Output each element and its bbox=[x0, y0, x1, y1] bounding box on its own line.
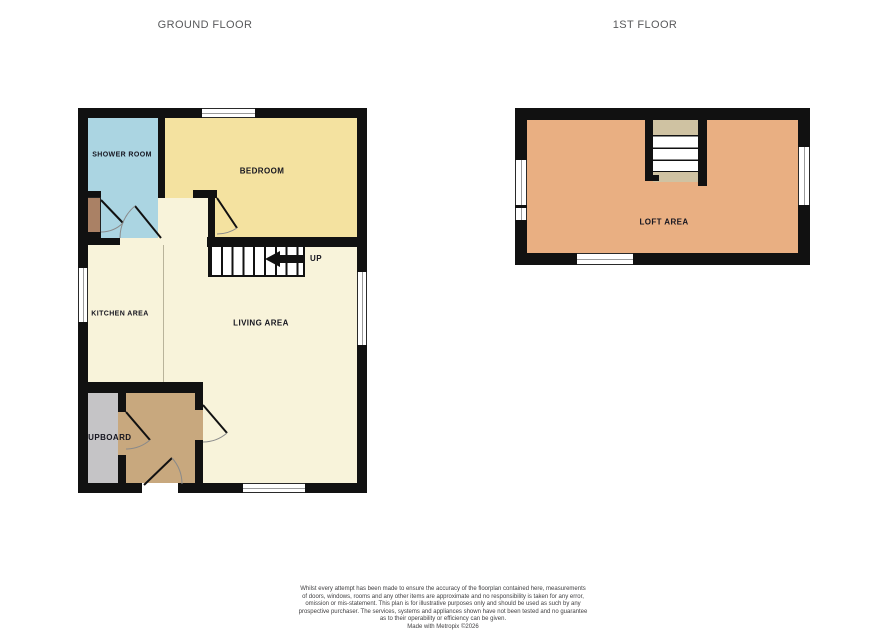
wall-backdoor-stub-top bbox=[88, 191, 101, 197]
stairs-landing-bottom bbox=[653, 172, 698, 182]
disclaimer: Whilst every attempt has been made to en… bbox=[283, 586, 603, 632]
disclaimer-line: as to their operability or efficiency ca… bbox=[283, 616, 603, 624]
wall-hall-stub-top bbox=[195, 387, 203, 410]
cupboard-label: CUPBOARD bbox=[82, 433, 131, 442]
stairs-up-label: UP bbox=[310, 254, 322, 263]
window-right bbox=[357, 272, 367, 345]
wall-hall-stub-bottom bbox=[195, 440, 203, 483]
disclaimer-line: Whilst every attempt has been made to en… bbox=[283, 586, 603, 594]
stairs-first bbox=[653, 135, 698, 172]
ground-floor-title: GROUND FLOOR bbox=[120, 19, 290, 31]
shower-room-label: SHOWER ROOM bbox=[92, 152, 152, 159]
wall-cupboard-stub-bottom bbox=[118, 455, 126, 483]
wall-bottom bbox=[78, 483, 367, 493]
loft-area-label: LOFT AREA bbox=[639, 218, 688, 227]
wall-shower-bottom bbox=[88, 238, 120, 245]
bedroom-label: BEDROOM bbox=[240, 167, 285, 176]
wall-cupboard-top bbox=[88, 382, 203, 393]
wall-top bbox=[515, 108, 810, 120]
wall-bedroom-bottom bbox=[207, 237, 357, 247]
wall-stairwell-right bbox=[698, 120, 707, 186]
first-floor-plan: LOFT AREA bbox=[515, 108, 810, 265]
kitchen-area-label: KITCHEN AREA bbox=[91, 311, 148, 318]
wall-bottom bbox=[515, 253, 810, 265]
kitchen-living-divider bbox=[163, 245, 164, 382]
front-door-opening bbox=[142, 483, 178, 493]
disclaimer-line: prospective purchaser. The services, sys… bbox=[283, 609, 603, 617]
window-top bbox=[202, 108, 255, 118]
wall-stairwell-left bbox=[645, 120, 653, 181]
stairs-landing-top bbox=[653, 120, 698, 135]
wall-cupboard-stub-top bbox=[118, 393, 126, 412]
window-right bbox=[798, 147, 810, 205]
up-arrow-icon bbox=[280, 255, 304, 263]
floorplan-page: GROUND FLOOR 1ST FLOOR bbox=[0, 0, 886, 640]
window-left-upper bbox=[515, 160, 527, 205]
living-area-label: LIVING AREA bbox=[233, 319, 289, 328]
window-bottom bbox=[243, 483, 305, 493]
wall-stairwell-left-stub bbox=[645, 175, 659, 181]
disclaimer-line: omission or mis-statement. This plan is … bbox=[283, 601, 603, 609]
wall-backdoor-stub-bottom bbox=[88, 232, 101, 238]
metropix-credit: Made with Metropix ©2026 bbox=[283, 624, 603, 632]
window-left-lower bbox=[515, 208, 527, 220]
window-bottom bbox=[577, 253, 633, 265]
wall-shower-bedroom bbox=[158, 118, 165, 198]
disclaimer-line: of doors, windows, rooms and any other i… bbox=[283, 594, 603, 602]
window-left bbox=[78, 268, 88, 322]
ground-floor-plan: UP SHOWER ROOM BEDROOM KITCHEN AREA LIVI… bbox=[78, 108, 367, 493]
first-floor-title: 1ST FLOOR bbox=[560, 19, 730, 31]
bedroom-floor bbox=[165, 118, 357, 198]
bedroom-floor-lower bbox=[215, 198, 357, 237]
up-arrow-head-icon bbox=[265, 251, 280, 267]
